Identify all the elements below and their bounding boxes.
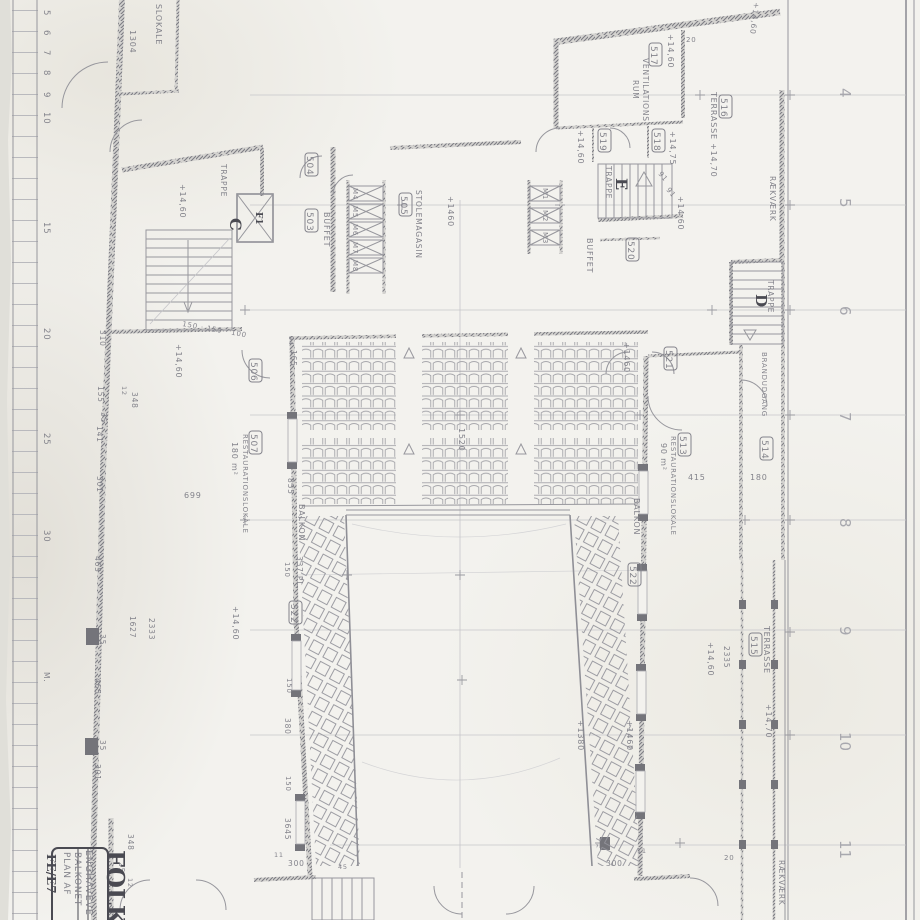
grid-numbers: 4 5 6 7 8 9 10 11: [836, 88, 854, 859]
dim-label: 3645: [283, 818, 292, 840]
room-name-balkon-west: BALKON: [297, 504, 306, 541]
dim-label: 1520: [457, 428, 466, 452]
level-label: +1380: [576, 720, 585, 751]
scale-mark: 8: [41, 70, 51, 76]
level-label: +1460: [625, 720, 634, 751]
level-label: +14,60: [576, 130, 585, 164]
railing-label: RÆKVÆRK: [768, 176, 777, 222]
torn-left-edge: [0, 0, 12, 920]
room-name-buffet-west: BUFFET: [322, 212, 331, 247]
level-label: +14,60: [748, 2, 761, 35]
stairs-and-columns: [146, 164, 783, 920]
aisle-right: [508, 338, 534, 510]
level-label: +14,75: [668, 131, 677, 165]
scale-mark: 10: [41, 112, 51, 124]
balcony-front-rail: [346, 510, 570, 515]
balcony-seating: [298, 338, 640, 920]
dim-label: 2333: [147, 618, 156, 640]
grid-number-5: 5: [836, 198, 854, 208]
dim-label: 11: [274, 851, 284, 859]
seat-rows-front: [302, 438, 638, 504]
level-label: +1460: [446, 196, 455, 227]
svg-text:505: 505: [398, 196, 408, 216]
level-label: +14,60: [676, 196, 685, 230]
stair-bottom-center: [312, 878, 374, 920]
column-label-m1: M1: [541, 188, 549, 200]
stair-label-trappe-e: TRAPPE: [604, 165, 613, 199]
dim-label: 301: [93, 764, 102, 781]
stair-trappe-c: [146, 230, 232, 330]
svg-text:518: 518: [651, 132, 661, 152]
dim-label: 180: [750, 473, 768, 482]
floorplan-sheet: SLOKALE 1304 517 VENTILATIONS RUM +14,60…: [0, 0, 920, 920]
svg-text:515: 515: [748, 636, 758, 656]
room-number-522-west: 522: [288, 601, 302, 624]
dim-label: 465: [93, 678, 102, 695]
room-name-rum: RUM: [631, 80, 640, 100]
svg-text:522: 522: [288, 604, 298, 624]
title-project-name: FOLKE: [101, 850, 130, 920]
floorplan-svg: SLOKALE 1304 517 VENTILATIONS RUM +14,60…: [0, 0, 920, 920]
level-label: +14,60: [706, 642, 715, 676]
grid-number-6: 6: [836, 306, 854, 316]
room-name-balkon-east: BALKON: [632, 498, 641, 535]
title-block: FE/E7 PLAN AF BALKONET ENGHAVEVE FOLKE: [44, 848, 130, 920]
scale-mark: 5: [41, 10, 51, 16]
column-label-m5: M5: [351, 206, 359, 218]
grid-number-7: 7: [836, 412, 854, 422]
room-label-partial: SLOKALE: [154, 4, 163, 45]
scale-unit: M.: [42, 672, 51, 682]
level-label: +14,60: [231, 606, 240, 640]
stair-letter-d: D: [752, 294, 770, 307]
dim-label: 301: [95, 476, 104, 493]
dim-label: 141: [95, 426, 104, 443]
level-label: +14,60: [178, 184, 187, 218]
svg-text:504: 504: [304, 156, 314, 176]
title-line-1: PLAN AF: [61, 852, 71, 895]
dim-label: 20: [724, 854, 735, 862]
aisle-left: [396, 338, 422, 510]
svg-text:516: 516: [718, 98, 728, 118]
scale-mark: 6: [41, 30, 51, 36]
dim-label: 91: [656, 170, 669, 183]
dim-label: 150: [283, 562, 291, 578]
column-label-m6: M6: [351, 224, 359, 236]
corridor-label-brandudgang: BRANDUDGANG: [760, 352, 768, 417]
area-label-507: 180 m²: [230, 442, 239, 476]
scale-mark: 20: [41, 328, 51, 340]
room-name-terrasse-516: TERRASSE +14,70: [709, 91, 718, 178]
seat-count-label: 337 PL.: [295, 556, 304, 589]
grid-number-10: 10: [836, 732, 854, 751]
room-name-buffet-east: BUFFET: [585, 238, 594, 273]
void-edges: [346, 515, 592, 866]
dim-label: 300: [288, 859, 305, 868]
room-number-503: 503: [304, 209, 318, 232]
grid-number-4: 4: [836, 88, 854, 98]
level-label: +1460: [622, 342, 631, 373]
railing-label: RÆKVÆRK: [777, 860, 786, 906]
stair-letter-c: C: [226, 218, 245, 231]
dim-label: 94: [287, 336, 295, 346]
dim-label: 855: [286, 478, 295, 495]
dim-label: 150: [285, 678, 293, 694]
room-name-restaurant-east: RESTAURATIONSLOKALE: [669, 436, 677, 536]
scale-bar-labels: 5 6 7 8 9 10 15 20 25 30 M.: [41, 10, 51, 682]
dim-label: 35: [98, 634, 107, 645]
dim-label: 35: [99, 412, 108, 423]
grid-number-8: 8: [836, 518, 854, 528]
level-label: +14,60: [174, 344, 183, 378]
svg-text:506: 506: [248, 362, 258, 382]
lift-label-f1: F1: [253, 212, 263, 225]
dim-label: 155: [96, 386, 105, 403]
dim-label: 300: [606, 859, 623, 868]
column-label-m7: M7: [351, 242, 359, 254]
scale-mark: 7: [41, 50, 51, 56]
column-label-m3: M3: [541, 232, 549, 244]
svg-text:520: 520: [625, 241, 635, 261]
dim-label: 1304: [128, 30, 137, 54]
room-number-506: 506: [248, 359, 262, 382]
dim-label: 1627: [128, 616, 137, 638]
dim-label: 35: [98, 740, 107, 751]
dim-label: 380: [283, 718, 292, 735]
dim-label: 348: [126, 834, 135, 851]
dim-label: 348: [130, 392, 139, 409]
dim-label: 310: [98, 330, 107, 347]
svg-text:513: 513: [677, 436, 687, 456]
scale-mark: 9: [41, 92, 51, 98]
level-label: +14,70: [764, 704, 773, 738]
dim-label: 20: [686, 36, 697, 44]
room-number-516: 516: [718, 95, 732, 118]
dim-label: 2335: [722, 646, 731, 668]
svg-text:522: 522: [627, 566, 637, 586]
area-label-513: 90 m²: [659, 443, 668, 471]
room-number-521: 521: [663, 347, 677, 370]
room-number-505: 505: [398, 193, 412, 216]
room-name-stolemagasin: STOLEMAGASIN: [414, 190, 423, 259]
grid-number-11: 11: [836, 840, 854, 859]
room-name-ventilations: VENTILATIONS: [641, 58, 650, 122]
svg-text:514: 514: [759, 440, 769, 460]
column-label-m8: M8: [351, 260, 359, 272]
wall-trappe-c-north: [122, 147, 263, 170]
grid-number-9: 9: [836, 626, 854, 636]
column-label-m2: M2: [541, 210, 549, 222]
level-label: +14,60: [666, 34, 675, 68]
svg-text:503: 503: [304, 212, 314, 232]
seat-rows-rear: [302, 342, 638, 430]
scale-mark: 30: [41, 530, 51, 542]
balcony-rear-wall: [294, 332, 648, 338]
scale-bar: [12, 0, 38, 920]
dim-label: 12: [120, 386, 128, 396]
dim-label: 415: [688, 473, 706, 482]
column-label-m4: M4: [351, 188, 359, 200]
room-name-restaurant-west: RESTAURATIONSLOKALE: [241, 434, 249, 534]
room-number-514: 514: [759, 437, 773, 460]
outer-wall-west: [93, 0, 122, 920]
room-number-518: 518: [651, 129, 665, 152]
terrace-515-walls: [742, 560, 774, 920]
stair-label-trappe-c: TRAPPE: [219, 163, 228, 197]
svg-text:521: 521: [663, 350, 673, 370]
room-number-513: 513: [677, 433, 691, 456]
dim-label: 45: [338, 863, 348, 871]
svg-text:519: 519: [597, 132, 607, 152]
room-number-507: 507: [248, 431, 262, 454]
dim-label: 91: [664, 186, 677, 199]
stair-letter-e: E: [612, 178, 631, 190]
dim-label: 150: [284, 776, 292, 792]
scale-mark: 25: [41, 433, 51, 445]
dim-label: 11: [637, 847, 647, 855]
dim-label: 165: [289, 350, 298, 367]
room-name-terrasse-515: TERRASSE: [762, 625, 771, 674]
title-line-2: BALKONET: [72, 852, 82, 906]
drawing-number: FE/E7: [44, 854, 58, 894]
scale-mark: 15: [41, 222, 51, 234]
room-number-515: 515: [748, 633, 762, 656]
room-number-519: 519: [597, 129, 611, 152]
dim-label: 465: [93, 556, 102, 573]
title-address: ENGHAVEVE: [83, 850, 94, 916]
dim-label: 699: [184, 491, 202, 500]
room-number-520: 520: [625, 238, 639, 261]
